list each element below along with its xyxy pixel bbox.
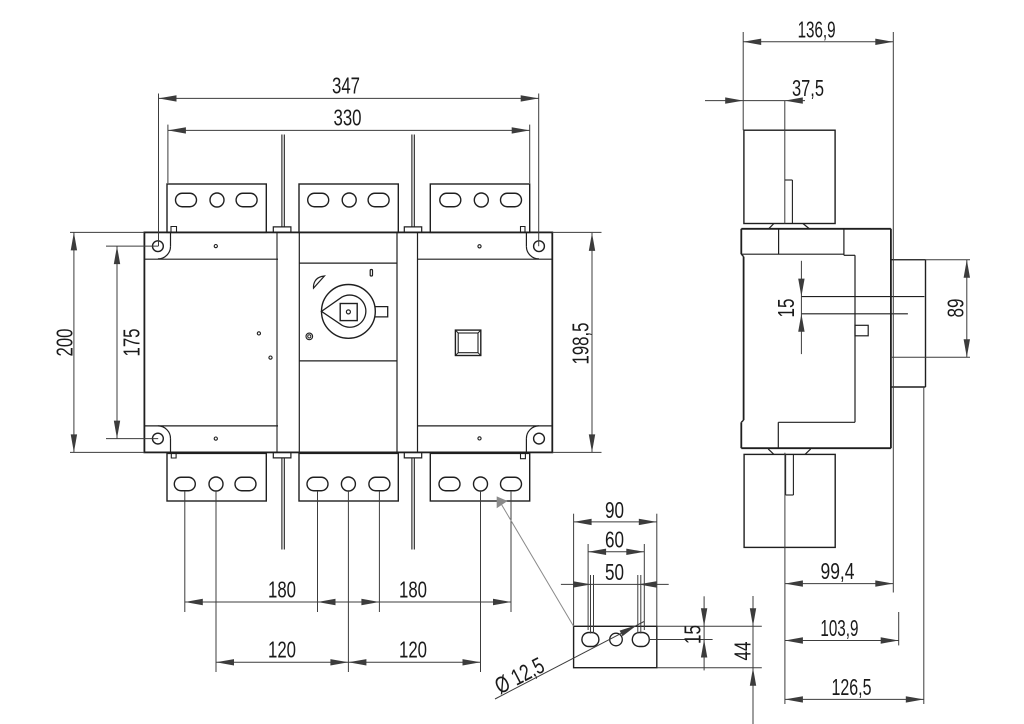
svg-text:126,5: 126,5	[832, 674, 872, 700]
svg-text:180: 180	[399, 577, 427, 603]
svg-text:200: 200	[51, 329, 77, 357]
svg-text:120: 120	[399, 637, 427, 663]
svg-text:37,5: 37,5	[792, 75, 824, 101]
svg-text:180: 180	[268, 577, 296, 603]
svg-text:330: 330	[334, 105, 362, 131]
svg-text:89: 89	[943, 299, 969, 318]
svg-text:15: 15	[680, 625, 706, 644]
svg-text:15: 15	[773, 299, 799, 318]
svg-text:50: 50	[605, 559, 624, 585]
svg-text:347: 347	[332, 73, 360, 99]
svg-text:99,4: 99,4	[821, 558, 855, 584]
svg-text:198,5: 198,5	[568, 323, 594, 365]
svg-text:120: 120	[268, 637, 296, 663]
svg-text:44: 44	[730, 641, 756, 660]
svg-text:103,9: 103,9	[820, 615, 858, 641]
svg-text:90: 90	[605, 497, 624, 523]
svg-text:175: 175	[119, 329, 145, 357]
svg-text:60: 60	[605, 527, 624, 553]
svg-text:136,9: 136,9	[798, 16, 836, 42]
